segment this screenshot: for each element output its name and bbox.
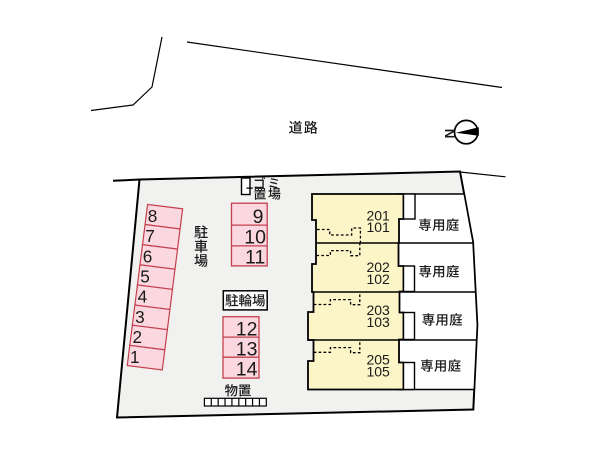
svg-text:9: 9 xyxy=(253,206,264,228)
svg-text:2: 2 xyxy=(133,327,143,347)
svg-text:4: 4 xyxy=(138,287,148,307)
svg-text:8: 8 xyxy=(148,206,158,226)
svg-text:103: 103 xyxy=(366,314,390,330)
svg-text:102: 102 xyxy=(366,271,390,287)
svg-text:N: N xyxy=(442,129,457,139)
svg-text:10: 10 xyxy=(244,227,266,249)
svg-text:1: 1 xyxy=(130,347,140,367)
svg-text:12: 12 xyxy=(236,319,258,341)
svg-text:14: 14 xyxy=(236,359,258,381)
svg-text:7: 7 xyxy=(145,226,155,246)
svg-text:101: 101 xyxy=(366,219,390,235)
svg-text:5: 5 xyxy=(140,267,150,287)
svg-text:3: 3 xyxy=(135,307,145,327)
svg-text:11: 11 xyxy=(245,247,265,269)
svg-text:13: 13 xyxy=(236,339,258,361)
svg-text:105: 105 xyxy=(366,363,390,379)
svg-text:6: 6 xyxy=(143,246,153,266)
